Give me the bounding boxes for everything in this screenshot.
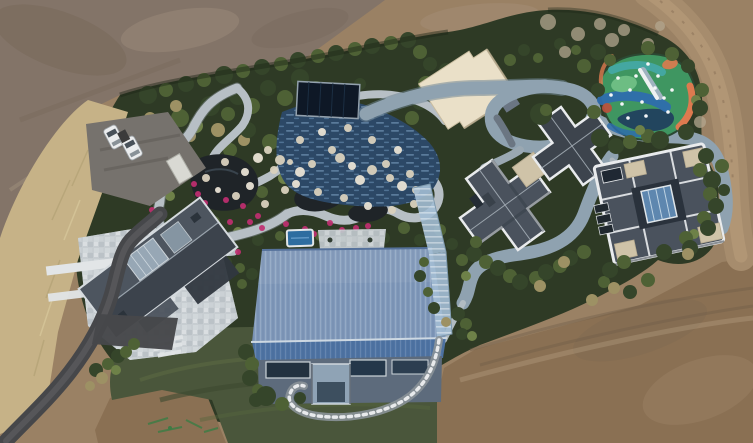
shrub <box>571 45 581 55</box>
rock <box>364 202 372 210</box>
shrub <box>586 294 598 306</box>
rock <box>202 174 210 182</box>
rock <box>270 166 278 174</box>
rock <box>367 165 377 175</box>
play-equipment-dot <box>666 110 670 114</box>
play-equipment-dot <box>662 96 666 100</box>
play-equipment-dot <box>620 102 624 106</box>
shrub <box>111 365 121 375</box>
rock <box>308 160 316 168</box>
rock <box>221 158 229 166</box>
shrub <box>715 159 729 173</box>
shrub <box>504 54 516 66</box>
play-equipment-dot <box>609 93 613 97</box>
play-equipment-dot <box>653 86 657 90</box>
flower-bed <box>283 221 289 227</box>
play-equipment-dot <box>626 116 630 120</box>
shrub <box>518 44 530 56</box>
rock <box>275 155 285 165</box>
rock <box>253 153 263 163</box>
rock <box>261 200 269 208</box>
rock <box>344 124 352 132</box>
play-equipment-dot <box>640 100 644 104</box>
rock <box>318 128 326 136</box>
rock <box>386 174 394 182</box>
rock <box>406 170 414 178</box>
shrub <box>651 131 669 149</box>
patio-planter <box>328 238 333 243</box>
shrub <box>602 262 618 278</box>
shrub <box>96 372 108 384</box>
shrub <box>656 244 672 260</box>
shrub <box>294 392 306 404</box>
play-equipment-dot <box>634 74 638 78</box>
shrub <box>623 285 637 299</box>
shrub <box>533 53 543 63</box>
shrub <box>277 90 293 106</box>
shrub <box>703 171 721 189</box>
shrub <box>428 302 440 314</box>
rock <box>368 136 376 144</box>
shrub <box>577 59 591 73</box>
aerial-photo-stage <box>0 0 753 443</box>
shrub <box>275 231 285 241</box>
shrub <box>534 280 546 292</box>
shrub <box>641 41 655 55</box>
shrub <box>260 80 276 96</box>
play-equipment-dot <box>644 114 648 118</box>
play-equipment-dot <box>670 88 674 92</box>
central-bay-glass <box>317 382 345 402</box>
bare-tree <box>618 24 630 36</box>
rock <box>264 146 272 154</box>
shrub <box>558 256 570 268</box>
flower-bed <box>240 203 246 209</box>
shrub <box>456 254 468 266</box>
flower-bed <box>191 181 197 187</box>
shrub <box>608 138 624 154</box>
shrub <box>540 104 552 116</box>
shrub <box>211 123 225 137</box>
flower-bed <box>259 225 265 231</box>
rock <box>394 146 402 154</box>
shrub <box>587 105 601 119</box>
shrub <box>461 271 471 281</box>
shrub <box>577 245 591 259</box>
shrub <box>681 59 695 73</box>
rock <box>246 182 254 190</box>
shrub <box>641 273 655 287</box>
rock <box>382 160 390 168</box>
flower-bed <box>365 223 371 229</box>
shrub <box>441 317 451 327</box>
shrub <box>617 255 631 269</box>
shrub <box>623 135 637 149</box>
shrub <box>414 270 426 282</box>
shrub <box>678 124 694 140</box>
playground-red-patch <box>602 103 612 113</box>
bare-tree <box>559 46 571 58</box>
shrub <box>423 57 437 71</box>
rock <box>215 187 221 193</box>
shrub <box>242 370 258 386</box>
shrub <box>665 47 679 61</box>
rock <box>232 192 240 200</box>
shrub <box>700 220 716 236</box>
shrub <box>682 248 694 260</box>
flower-bed <box>223 197 229 203</box>
rock <box>335 153 345 163</box>
rock <box>340 194 348 202</box>
shrub <box>128 338 140 350</box>
rock <box>328 146 336 154</box>
window-band <box>350 360 386 376</box>
shrub <box>590 44 606 60</box>
shrub <box>512 274 528 290</box>
shrub <box>275 397 289 411</box>
shrub <box>413 45 427 59</box>
shrub <box>598 276 610 288</box>
roof-sheen <box>258 248 436 284</box>
rock <box>292 180 300 188</box>
shrub <box>698 148 714 164</box>
bare-tree <box>571 27 585 41</box>
bare-tree <box>694 116 706 128</box>
shrub <box>456 328 468 340</box>
shrub <box>85 381 95 391</box>
shrub <box>608 282 620 294</box>
aerial-photo <box>0 0 753 443</box>
flower-bed <box>327 220 333 226</box>
rock <box>314 188 322 196</box>
shrub <box>591 129 609 147</box>
flower-bed <box>195 191 201 197</box>
shrub <box>398 222 410 234</box>
flower-bed <box>255 213 261 219</box>
shrub <box>405 111 419 125</box>
flower-bed <box>247 219 253 225</box>
rock <box>295 167 305 177</box>
shrub <box>221 107 235 121</box>
play-equipment-dot <box>616 76 620 80</box>
bare-tree <box>540 14 556 30</box>
shrub <box>414 234 426 246</box>
shrub <box>718 184 730 196</box>
shrub <box>695 83 709 97</box>
flower-bed <box>235 249 241 255</box>
shrub <box>423 287 433 297</box>
bare-tree <box>605 33 619 47</box>
rock <box>355 175 365 185</box>
patio-planter <box>368 238 373 243</box>
rock <box>287 159 293 165</box>
flower-bed <box>227 219 233 225</box>
shrub <box>708 198 724 214</box>
shrub <box>419 257 429 267</box>
play-equipment-dot <box>646 62 650 66</box>
shrub <box>604 54 616 66</box>
rock <box>348 162 356 170</box>
rock <box>296 136 304 144</box>
shrub <box>256 386 276 406</box>
shrub <box>446 238 458 250</box>
rock <box>281 186 289 194</box>
shrub <box>692 100 708 116</box>
shrub <box>635 125 645 135</box>
shrub <box>470 236 482 248</box>
shrub <box>246 268 258 280</box>
dark-pool-pavilion <box>296 81 360 118</box>
small-rooftop-pool <box>287 230 314 247</box>
shrub <box>591 83 605 97</box>
shrub <box>170 100 182 112</box>
shrub <box>538 264 554 280</box>
rock <box>241 168 249 176</box>
window-band <box>392 360 428 374</box>
bare-tree <box>655 21 665 31</box>
shrub <box>245 357 259 371</box>
shrub <box>467 331 477 341</box>
shrub <box>237 279 247 289</box>
play-equipment-dot <box>628 88 632 92</box>
rock <box>397 181 407 191</box>
bare-tree <box>594 18 606 30</box>
window-band <box>266 362 310 378</box>
rock <box>388 206 396 214</box>
play-equipment-dot <box>656 74 660 78</box>
